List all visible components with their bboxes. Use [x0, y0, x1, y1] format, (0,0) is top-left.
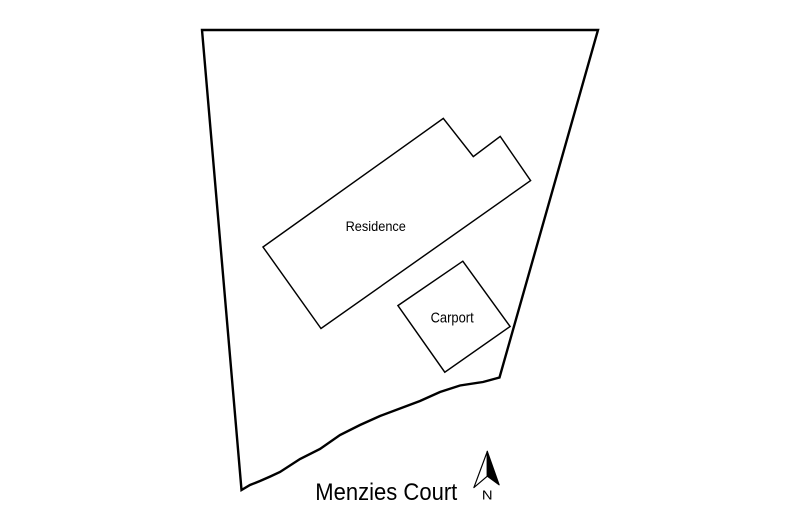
svg-text:Carport: Carport	[431, 310, 475, 327]
svg-text:Residence: Residence	[346, 218, 406, 234]
svg-text:N: N	[482, 488, 493, 503]
svg-text:Menzies Court: Menzies Court	[315, 479, 457, 506]
